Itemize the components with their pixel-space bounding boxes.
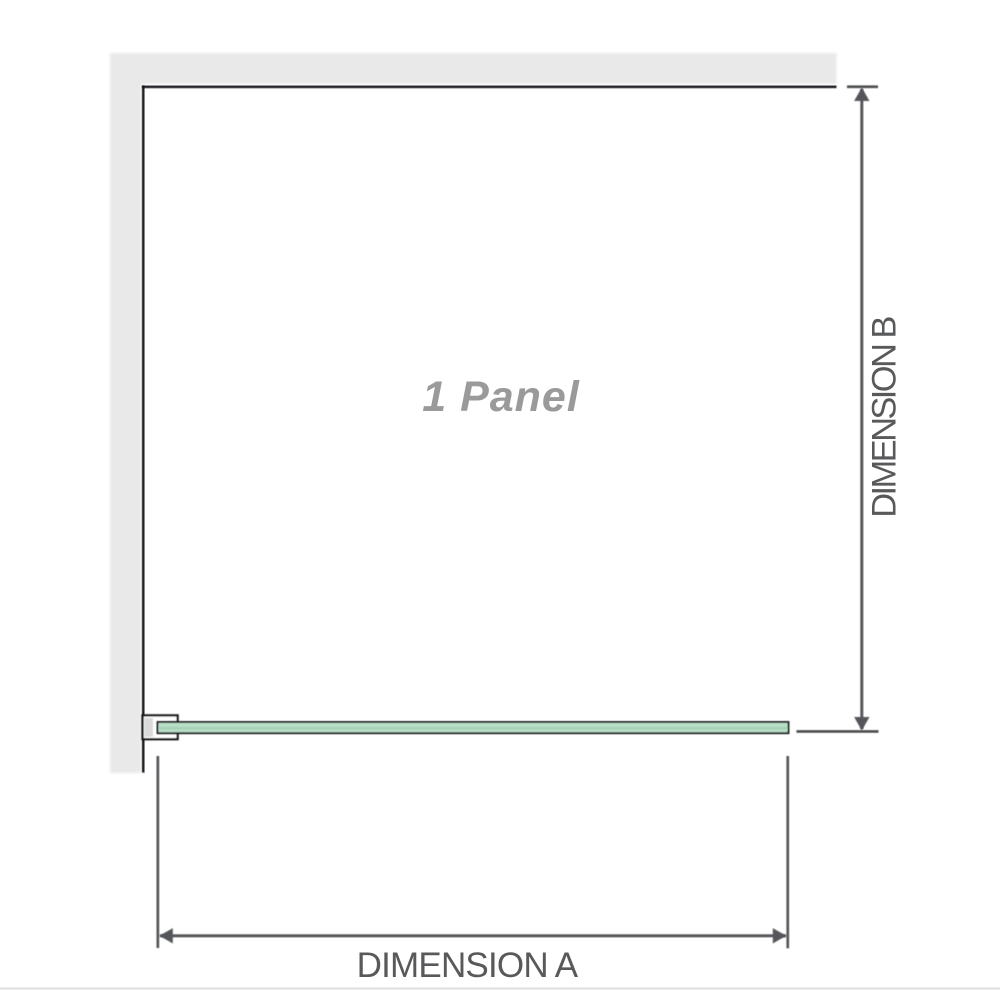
svg-text:DIMENSION B: DIMENSION B [866,317,904,518]
svg-text:1 Panel: 1 Panel [422,373,580,421]
svg-text:DIMENSION A: DIMENSION A [357,946,579,985]
